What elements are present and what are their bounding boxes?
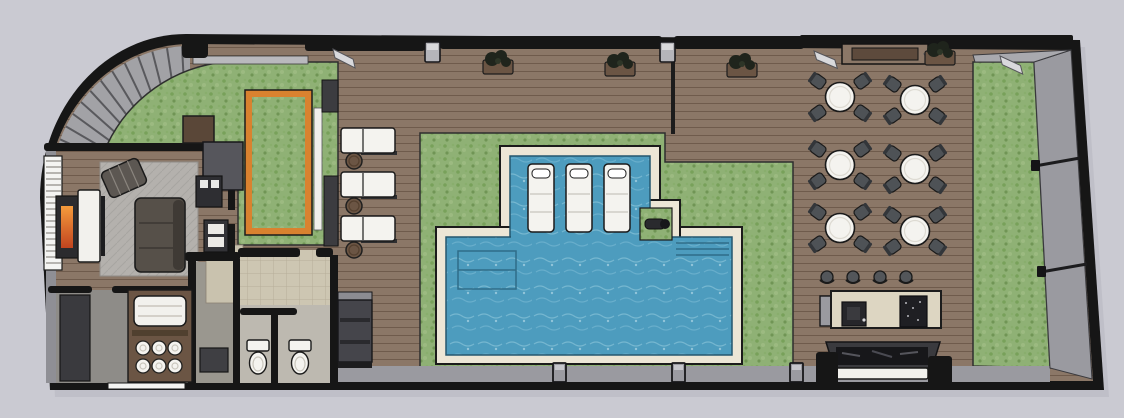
rolled-towel-body	[136, 359, 150, 373]
bar-stool	[873, 271, 887, 283]
parapet-post	[553, 363, 566, 382]
deck-lounger-body	[341, 128, 395, 153]
rolled-towel-body	[136, 341, 150, 355]
plant-highlight	[739, 61, 745, 67]
lounger-side-table	[346, 198, 362, 214]
pool-lounger	[604, 164, 630, 232]
toilet	[289, 340, 311, 374]
pool-lounger-pillow	[532, 169, 550, 178]
rolled-towel	[136, 359, 150, 373]
lounger-side-table	[346, 153, 362, 169]
wall-gap-post	[660, 42, 675, 62]
shelf-board	[340, 318, 370, 322]
deck-lounger-body	[341, 172, 395, 197]
shelf-board	[340, 340, 370, 344]
sun-lounger-deck	[341, 128, 397, 258]
lounge-south-wall-a	[48, 286, 92, 293]
storage-cabinet	[60, 295, 90, 381]
rolled-towel	[168, 341, 182, 355]
planter-dark-wall-lower	[324, 176, 338, 246]
lounge-north-wall	[44, 143, 216, 151]
rolled-towel-body	[152, 341, 166, 355]
rolled-towel	[152, 359, 166, 373]
rolled-towel-body	[152, 359, 166, 373]
plant-foliage	[745, 60, 755, 70]
post-top	[662, 44, 673, 50]
stall-partition-vertical	[271, 308, 278, 383]
mini-fridge-door	[208, 224, 224, 234]
mini-fridge	[204, 220, 228, 252]
wall-gap-post	[425, 42, 440, 62]
deck-lounger-body	[341, 216, 395, 241]
water-spout-cap	[660, 219, 670, 229]
deck-lounger	[341, 128, 397, 155]
poolside-towel-shelf	[338, 292, 372, 368]
plant-foliage	[623, 59, 633, 69]
floor-plan-stage	[0, 0, 1124, 418]
restroom-east-wall	[330, 255, 338, 383]
parapet-divider-block	[1031, 160, 1040, 171]
north-wall-bar-mid2	[674, 36, 804, 49]
skylight-glass	[852, 48, 918, 60]
north-wall-bar-west	[305, 37, 425, 51]
av-speaker	[200, 180, 208, 188]
side-table-top	[346, 242, 362, 258]
toilet-tank	[247, 340, 269, 351]
bar-grill	[900, 296, 927, 327]
grate-dot	[907, 315, 909, 317]
fire-bench-charcoal	[836, 347, 928, 365]
pool-lounger-pillow	[570, 169, 588, 178]
plant-foliage	[501, 57, 511, 67]
rolled-towel-body	[168, 341, 182, 355]
plant-highlight	[495, 58, 501, 64]
rolled-towel-body	[168, 359, 182, 373]
parapet-post	[672, 363, 685, 382]
sofa	[135, 198, 185, 272]
sofa-back	[173, 200, 184, 270]
parapet-post-top	[555, 365, 564, 370]
planter-white-edge	[314, 108, 322, 230]
floor-plan-rendering	[0, 0, 1124, 418]
rolled-towel	[168, 359, 182, 373]
lounger-side-table	[346, 242, 362, 258]
in-pool-loungers	[528, 164, 630, 232]
av-cabinet	[196, 176, 222, 207]
bar-stool	[899, 271, 913, 283]
north-wall-bar-mid	[440, 36, 662, 49]
parapet-post	[790, 363, 803, 382]
rolled-towel	[152, 341, 166, 355]
south-wall-door	[108, 383, 185, 389]
plant-highlight	[617, 60, 623, 66]
lounge-east-wall-b	[228, 224, 235, 252]
shelf-base	[338, 362, 372, 368]
entry-wood-box	[183, 116, 214, 143]
bar-sink-basin	[847, 307, 860, 320]
grate-dot	[905, 302, 907, 304]
plant-highlight	[937, 49, 943, 55]
grate-dot	[919, 301, 921, 303]
planter-dark-wall-upper	[322, 80, 338, 112]
restroom-west-wall	[233, 259, 240, 383]
folded-towels	[134, 296, 186, 326]
bar-stool	[820, 271, 834, 283]
tv-screen	[101, 196, 105, 256]
grate-dot	[912, 307, 914, 309]
shelf-top-surface	[338, 292, 372, 300]
side-table-top	[346, 198, 362, 214]
fire-bench-post-west	[816, 352, 838, 385]
deck-lounger	[341, 172, 397, 199]
side-table-top	[346, 153, 362, 169]
stall-partition-horizontal	[240, 308, 297, 315]
pool-lounger	[566, 164, 592, 232]
shelf-body	[338, 300, 372, 362]
pool-lounger-pillow	[608, 169, 626, 178]
parapet-post-top	[792, 365, 801, 370]
rolled-towel	[136, 341, 150, 355]
post-top	[427, 44, 438, 50]
deck-lounger	[341, 216, 397, 243]
shelf-board	[132, 330, 188, 336]
grate-dot	[917, 319, 919, 321]
skylight-recess	[842, 44, 928, 64]
restroom-tile-floor	[238, 250, 333, 305]
mini-fridge-door	[208, 237, 224, 247]
fire-bench-post-east	[928, 356, 952, 389]
fire-bench-ledge	[836, 368, 928, 379]
restroom-north-wall-a	[238, 248, 300, 257]
fireplace-fire	[61, 206, 73, 248]
corridor-bench	[200, 348, 228, 372]
pool-lounger	[528, 164, 554, 232]
bar-faucet	[862, 318, 865, 321]
parapet-divider-block	[1037, 266, 1046, 277]
recessed-edge-strip	[193, 56, 308, 64]
bar-stool	[846, 271, 860, 283]
curve-end-cap	[182, 35, 208, 58]
parapet-post-top	[674, 365, 683, 370]
planter-turf-fill	[252, 97, 305, 228]
plant-foliage	[943, 48, 953, 58]
av-speaker	[211, 180, 219, 188]
tv-console	[78, 190, 100, 262]
toilet	[247, 340, 269, 374]
toilet-tank	[289, 340, 311, 351]
